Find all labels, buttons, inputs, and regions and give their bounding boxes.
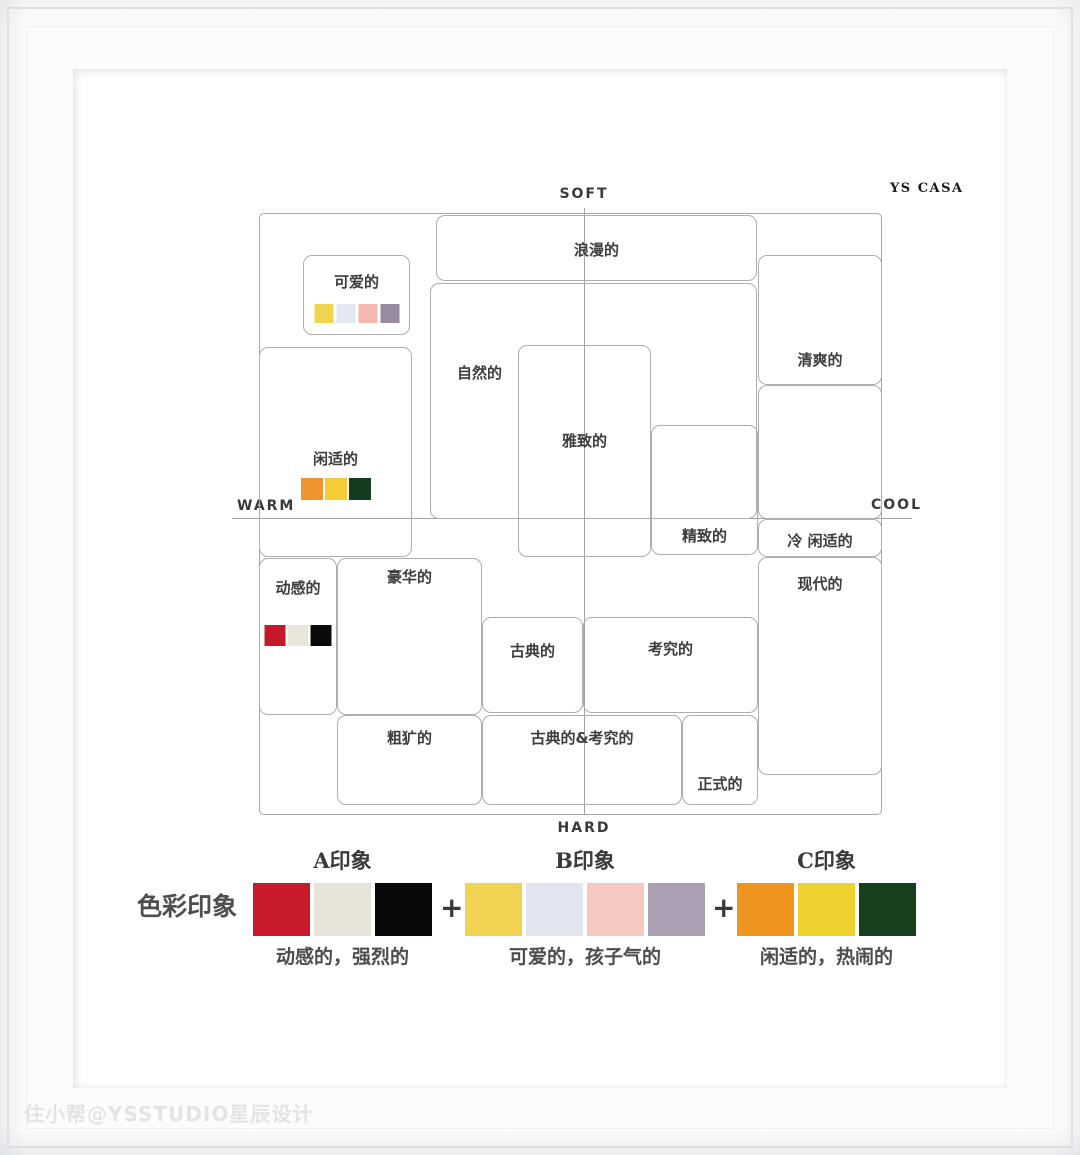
leisurely-color-swatches	[301, 478, 371, 500]
color-swatch	[358, 304, 377, 323]
plus-sign: +	[712, 891, 735, 924]
legend-group-b-name: B印象	[465, 845, 705, 875]
map-box-cool-leisurely: 冷 闲适的	[758, 519, 882, 557]
color-swatch	[314, 304, 333, 323]
color-swatch	[301, 478, 323, 500]
map-label-classical: 古典的	[483, 640, 582, 661]
legend-group-c-description: 闲适的，热闹的	[737, 942, 916, 969]
map-box-classical-and-refined: 古典的&考究的	[482, 715, 682, 805]
color-swatch	[288, 625, 309, 646]
map-box-exquisite: 精致的	[651, 425, 758, 555]
watermark: 住小帮@YSSTUDIO星辰设计	[24, 1098, 313, 1127]
color-swatch	[465, 883, 522, 936]
color-swatch	[380, 304, 399, 323]
map-label-dynamic: 动感的	[260, 577, 336, 598]
legend-group-c-name: C印象	[737, 845, 916, 875]
legend-group-a-description: 动感的，强烈的	[253, 942, 432, 969]
map-box-luxurious: 豪华的	[337, 558, 482, 715]
legend-group-b: B印象 可爱的，孩子气的	[465, 845, 705, 969]
color-swatch	[325, 478, 347, 500]
legend-title: 色彩印象	[137, 887, 237, 923]
color-swatch	[798, 883, 855, 936]
legend-group-a-swatches	[253, 883, 432, 936]
legend-group-b-swatches	[465, 883, 705, 936]
map-box-dynamic: 动感的	[259, 558, 337, 715]
map-box-leisurely: 闲适的	[259, 347, 412, 557]
map-box-elegant: 雅致的	[518, 345, 651, 557]
framed-color-image-scale: YS CASA SOFT HARD WARM COOL 浪漫的 可爱的 清爽的 …	[0, 0, 1080, 1155]
map-label-formal: 正式的	[683, 773, 757, 794]
color-swatch	[314, 883, 371, 936]
axis-label-hard: HARD	[558, 820, 611, 836]
color-swatch	[311, 625, 332, 646]
map-label-luxurious: 豪华的	[338, 566, 481, 587]
color-swatch	[265, 625, 286, 646]
cute-color-swatches	[314, 304, 399, 323]
map-label-refined: 考究的	[584, 638, 757, 659]
map-box-unlabeled	[758, 385, 882, 519]
map-box-refined: 考究的	[583, 617, 758, 713]
map-box-formal: 正式的	[682, 715, 758, 805]
legend-group-c: C印象 闲适的，热闹的	[737, 845, 916, 969]
map-label-fresh: 清爽的	[759, 349, 881, 370]
map-label-cute: 可爱的	[304, 271, 409, 292]
color-swatch	[859, 883, 916, 936]
color-swatch	[349, 478, 371, 500]
plus-sign: +	[440, 891, 463, 924]
map-box-rugged: 粗犷的	[337, 715, 482, 805]
map-box-modern: 现代的	[758, 557, 882, 775]
color-swatch	[587, 883, 644, 936]
map-box-classical: 古典的	[482, 617, 583, 713]
axis-label-soft: SOFT	[559, 186, 608, 202]
map-label-exquisite: 精致的	[652, 525, 757, 546]
map-label-cool-leisurely: 冷 闲适的	[759, 530, 881, 551]
legend-group-c-swatches	[737, 883, 916, 936]
map-label-natural: 自然的	[457, 362, 502, 383]
color-swatch	[737, 883, 794, 936]
map-label-leisurely: 闲适的	[260, 448, 411, 469]
map-label-modern: 现代的	[759, 573, 881, 594]
map-box-cute: 可爱的	[303, 255, 410, 335]
dynamic-color-swatches	[265, 625, 332, 646]
color-swatch	[336, 304, 355, 323]
map-label-classical-and-refined: 古典的&考究的	[483, 727, 681, 748]
legend-group-a: A印象 动感的，强烈的	[253, 845, 432, 969]
brand-logo: YS CASA	[890, 181, 964, 196]
map-box-fresh: 清爽的	[758, 255, 882, 385]
map-label-rugged: 粗犷的	[338, 727, 481, 748]
color-swatch	[526, 883, 583, 936]
map-label-romantic: 浪漫的	[437, 239, 756, 260]
map-box-romantic: 浪漫的	[436, 215, 757, 281]
color-swatch	[648, 883, 705, 936]
legend-group-a-name: A印象	[253, 845, 432, 875]
color-swatch	[375, 883, 432, 936]
legend-group-b-description: 可爱的，孩子气的	[465, 942, 705, 969]
map-label-elegant: 雅致的	[519, 430, 650, 451]
color-swatch	[253, 883, 310, 936]
